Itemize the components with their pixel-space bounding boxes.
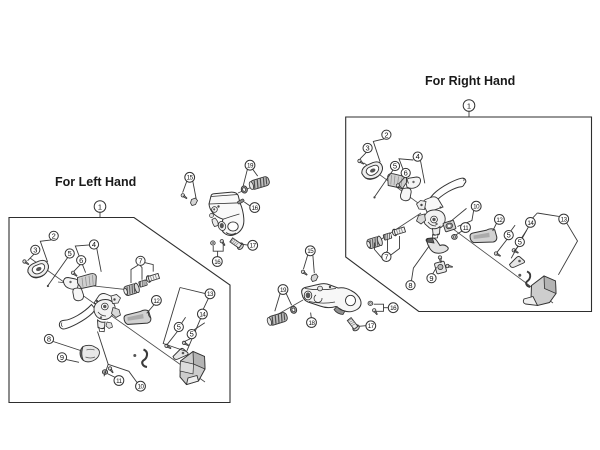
svg-text:5: 5 xyxy=(507,231,511,240)
svg-text:10: 10 xyxy=(137,384,144,391)
svg-text:17: 17 xyxy=(250,243,257,250)
svg-text:5: 5 xyxy=(177,323,181,332)
svg-text:13: 13 xyxy=(561,216,568,223)
svg-text:12: 12 xyxy=(153,298,160,305)
svg-text:12: 12 xyxy=(496,217,503,224)
svg-text:16: 16 xyxy=(214,259,221,266)
svg-text:13: 13 xyxy=(207,291,214,298)
svg-text:17: 17 xyxy=(368,323,375,330)
svg-text:2: 2 xyxy=(384,130,388,139)
svg-text:6: 6 xyxy=(404,169,408,178)
svg-text:11: 11 xyxy=(463,225,470,232)
svg-text:3: 3 xyxy=(366,144,370,153)
svg-text:11: 11 xyxy=(116,378,123,385)
svg-text:9: 9 xyxy=(429,274,433,283)
svg-text:4: 4 xyxy=(416,152,420,161)
svg-text:2: 2 xyxy=(52,231,56,240)
svg-text:16: 16 xyxy=(252,205,259,212)
svg-text:18: 18 xyxy=(308,320,315,327)
svg-text:1: 1 xyxy=(467,101,471,110)
svg-text:14: 14 xyxy=(199,311,206,318)
svg-text:15: 15 xyxy=(307,248,314,255)
svg-text:For Right Hand: For Right Hand xyxy=(425,74,515,88)
svg-text:5: 5 xyxy=(68,249,72,258)
svg-text:For Left Hand: For Left Hand xyxy=(55,175,136,189)
svg-text:4: 4 xyxy=(92,240,96,249)
svg-text:5: 5 xyxy=(190,330,194,339)
svg-text:5: 5 xyxy=(518,238,522,247)
svg-text:1: 1 xyxy=(98,202,102,211)
svg-text:19: 19 xyxy=(280,287,287,294)
svg-text:10: 10 xyxy=(473,204,480,211)
svg-text:8: 8 xyxy=(47,335,51,344)
svg-text:3: 3 xyxy=(33,245,37,254)
svg-text:9: 9 xyxy=(60,353,64,362)
svg-text:5: 5 xyxy=(393,162,397,171)
svg-text:15: 15 xyxy=(187,175,194,182)
svg-text:7: 7 xyxy=(138,256,142,265)
svg-text:8: 8 xyxy=(408,281,412,290)
svg-text:14: 14 xyxy=(527,220,534,227)
svg-text:7: 7 xyxy=(384,253,388,262)
svg-text:16: 16 xyxy=(390,305,397,312)
svg-text:19: 19 xyxy=(247,163,254,170)
svg-text:6: 6 xyxy=(79,256,83,265)
